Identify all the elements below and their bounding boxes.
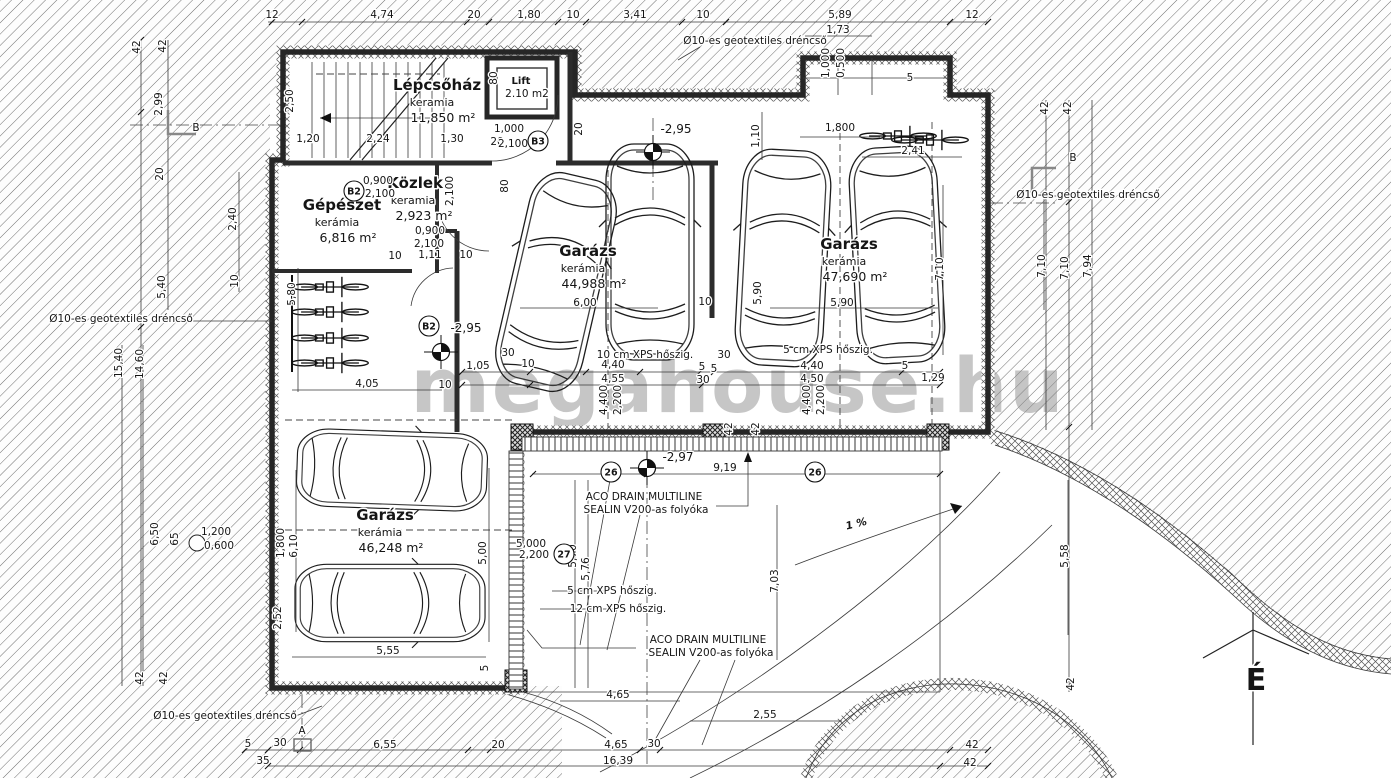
room-area: 11,850 m² bbox=[411, 110, 476, 125]
annotation: Ø10-es geotextiles dréncső bbox=[683, 35, 827, 47]
dimension-label: 30 bbox=[501, 347, 514, 359]
dimension-label: 20 bbox=[573, 122, 585, 135]
dimension-label: 2,100 bbox=[365, 188, 395, 200]
dimension-label: 1,11 bbox=[418, 249, 441, 261]
room-material: kerámia bbox=[561, 262, 606, 275]
dimension-label: 2,24 bbox=[366, 133, 390, 145]
dimension-label: 2,200 bbox=[815, 385, 827, 415]
dimension-label: 7,10 bbox=[934, 257, 946, 280]
dimension-label: 4,50 bbox=[800, 373, 823, 385]
annotation: ACO DRAIN MULTILINE bbox=[586, 491, 702, 503]
dimension-label: 15,40 bbox=[113, 348, 125, 378]
tag-label: B2 bbox=[422, 322, 436, 333]
dimension-label: 30 bbox=[647, 738, 660, 750]
room-area: 2,923 m² bbox=[396, 208, 453, 223]
dimension-label: 7,10 bbox=[1059, 256, 1071, 279]
dimension-label: 1,10 bbox=[750, 124, 762, 147]
dimension-label: 4,65 bbox=[606, 689, 629, 701]
dimension-label: 10 bbox=[521, 358, 534, 370]
annotation: Ø10-es geotextiles dréncső bbox=[1016, 189, 1160, 201]
dimension-label: 4,400 bbox=[598, 385, 610, 415]
level-value: -2,97 bbox=[662, 450, 693, 464]
annotation: 10 cm XPS hőszig. bbox=[597, 349, 694, 361]
room-material: keramia bbox=[410, 96, 455, 109]
dimension-label: 2,200 bbox=[519, 549, 549, 561]
room-name: Garázs bbox=[559, 242, 617, 260]
room-area: 46,248 m² bbox=[359, 540, 424, 555]
dimension-label: 80 bbox=[488, 71, 500, 84]
room-area: 44,988 m² bbox=[562, 276, 627, 291]
dimension-label: 1,200 bbox=[201, 526, 231, 538]
dimension-label: 3,41 bbox=[623, 9, 646, 21]
annotation: SEALIN V200-as folyóka bbox=[584, 504, 709, 516]
dimension-label: 1,29 bbox=[921, 372, 944, 384]
room-material: kerámia bbox=[315, 216, 360, 229]
dimension-label: 2,200 bbox=[612, 385, 624, 415]
dimension-label: 5,00 bbox=[477, 541, 489, 564]
dimension-label: 30 bbox=[696, 374, 709, 386]
dimension-label: 4,400 bbox=[801, 385, 813, 415]
dimension-label: 2,99 bbox=[153, 92, 165, 115]
annotation: 5 cm XPS hőszig. bbox=[783, 344, 873, 356]
dimension-label: 1,30 bbox=[440, 133, 463, 145]
annotation: Ø10-es geotextiles dréncső bbox=[153, 710, 297, 722]
annotation: 5 cm XPS hőszig. bbox=[567, 585, 657, 597]
dimension-label: 5,90 bbox=[830, 297, 853, 309]
dimension-label: 2,40 bbox=[227, 207, 239, 230]
dimension-label: 2,100 bbox=[498, 138, 528, 150]
room-area: 6,816 m² bbox=[320, 230, 377, 245]
room-name: Garázs bbox=[356, 506, 414, 524]
room-name: Garázs bbox=[820, 235, 878, 253]
room-name: Lépcsőház bbox=[393, 76, 481, 94]
dimension-label: 9,19 bbox=[713, 462, 736, 474]
dimension-label: 10 bbox=[438, 379, 451, 391]
tag-label: 26 bbox=[604, 468, 618, 479]
dimension-label: 30 bbox=[717, 349, 730, 361]
dimension-label: 42 bbox=[158, 671, 170, 684]
room-area: 2.10 m2 bbox=[505, 88, 549, 100]
dimension-label: 0,900 bbox=[415, 225, 445, 237]
annotation: B bbox=[192, 122, 199, 134]
dimension-label: 65 bbox=[169, 532, 181, 545]
dimension-label: 5,90 bbox=[752, 281, 764, 304]
dimension-label: 42 bbox=[963, 757, 976, 769]
dimension-label: 10 bbox=[459, 249, 472, 261]
dimension-label: 1,000 bbox=[820, 48, 832, 78]
tag-label: 27 bbox=[557, 550, 570, 561]
dimension-label: 6,55 bbox=[373, 739, 396, 751]
dimension-label: 2,52 bbox=[272, 606, 284, 629]
dimension-label: 6,10 bbox=[288, 534, 300, 557]
floor-plan-canvas: megahouse.hu bbox=[0, 0, 1391, 778]
dimension-label: 20 bbox=[467, 9, 480, 21]
annotation: 12 cm XPS hőszig. bbox=[570, 603, 667, 615]
dimension-label: 5,89 bbox=[828, 9, 851, 21]
dimension-label: 5 bbox=[902, 360, 909, 372]
dimension-label: 2,41 bbox=[901, 145, 924, 157]
dimension-label: 42 bbox=[134, 671, 146, 684]
floor-plan-page: megahouse.hu bbox=[0, 0, 1391, 778]
dimension-label: 7,94 bbox=[1082, 254, 1094, 278]
dimension-label: 6,00 bbox=[573, 297, 596, 309]
dimension-label: 20 bbox=[491, 739, 504, 751]
dimension-label: 0,500 bbox=[835, 48, 847, 78]
dimension-label: 10 bbox=[566, 9, 579, 21]
dimension-label: 7,03 bbox=[769, 569, 781, 592]
annotation: A bbox=[298, 725, 306, 737]
annotation: Ø10-es geotextiles dréncső bbox=[49, 313, 193, 325]
dimension-label: 1,80 bbox=[517, 9, 540, 21]
dimension-label: 1,20 bbox=[296, 133, 319, 145]
dimension-label: 10 bbox=[696, 9, 709, 21]
dimension-label: 7,10 bbox=[1036, 254, 1048, 277]
dimension-label: 5 bbox=[907, 72, 914, 84]
dimension-label: 4,74 bbox=[370, 9, 394, 21]
annotation: ACO DRAIN MULTILINE bbox=[650, 634, 766, 646]
dimension-label: 2,55 bbox=[753, 709, 776, 721]
dimension-label: 5 bbox=[699, 361, 706, 373]
dimension-label: 0,900 bbox=[363, 175, 393, 187]
dimension-label: 42 bbox=[1039, 101, 1051, 114]
room-material: keramia bbox=[391, 194, 436, 207]
room-area: 47,690 m² bbox=[823, 269, 888, 284]
dimension-label: 5,80 bbox=[286, 282, 298, 305]
dimension-label: 4,65 bbox=[604, 739, 627, 751]
dimension-label: 6,50 bbox=[149, 522, 161, 545]
dimension-label: 4,05 bbox=[355, 378, 378, 390]
dimension-label: 5,40 bbox=[156, 275, 168, 298]
room-name: Lift bbox=[512, 76, 531, 87]
tag-label: B3 bbox=[531, 137, 545, 148]
annotation: SEALIN V200-as folyóka bbox=[649, 647, 774, 659]
level-value: -2,95 bbox=[450, 321, 481, 335]
dimension-label: 42 bbox=[157, 39, 169, 52]
dimension-label: 5,55 bbox=[376, 645, 399, 657]
dimension-label: 42 bbox=[1065, 677, 1077, 690]
dimension-label: 42 bbox=[750, 422, 762, 435]
dimension-label: 42 bbox=[131, 40, 143, 53]
dimension-label: 42 bbox=[723, 422, 735, 435]
tag-label: B2 bbox=[347, 187, 361, 198]
dimension-label: 5 bbox=[711, 363, 718, 375]
dimension-label: 12 bbox=[265, 9, 278, 21]
dimension-label: 1,05 bbox=[466, 360, 489, 372]
annotation: B bbox=[1069, 152, 1076, 164]
dimension-label: 2,100 bbox=[444, 176, 456, 206]
tag-label: 26 bbox=[808, 468, 822, 479]
dimension-label: 16,39 bbox=[603, 755, 633, 767]
dimension-label: 1,800 bbox=[275, 528, 287, 558]
room-material: kerámia bbox=[822, 255, 867, 268]
level-value: -2,95 bbox=[660, 122, 691, 136]
dimension-label: 10 bbox=[229, 274, 241, 287]
dimension-label: 5,76 bbox=[580, 557, 592, 581]
dimension-label: 80 bbox=[499, 179, 511, 192]
dimension-label: 42 bbox=[965, 739, 978, 751]
dimension-label: 5 bbox=[245, 738, 252, 750]
dimension-label: 4,55 bbox=[601, 373, 624, 385]
drain-channel-vertical bbox=[509, 451, 523, 689]
dimension-label: 5 bbox=[479, 665, 491, 672]
dimension-label: 12 bbox=[965, 9, 978, 21]
dimension-label: 10 bbox=[698, 296, 711, 308]
dimension-label: 5,58 bbox=[1059, 544, 1071, 567]
drain-channel-horizontal bbox=[522, 437, 942, 451]
dimension-label: 35 bbox=[256, 755, 269, 767]
dimension-label: 1,800 bbox=[825, 122, 855, 134]
north-label: É bbox=[1246, 662, 1267, 698]
dimension-label: 14,60 bbox=[134, 349, 146, 379]
dimension-label: 20 bbox=[154, 167, 166, 180]
dimension-label: 2,50 bbox=[284, 89, 296, 112]
room-material: kerámia bbox=[358, 526, 403, 539]
dimension-label: 10 bbox=[388, 250, 401, 262]
dimension-label: 1,000 bbox=[494, 123, 524, 135]
room-name: Közlek. bbox=[387, 174, 448, 192]
dimension-label: 42 bbox=[1062, 101, 1074, 114]
dimension-label: 30 bbox=[273, 737, 286, 749]
dimension-label: 4,40 bbox=[800, 360, 823, 372]
dimension-label: 0,600 bbox=[204, 540, 234, 552]
dimension-label: 1,73 bbox=[826, 24, 849, 36]
